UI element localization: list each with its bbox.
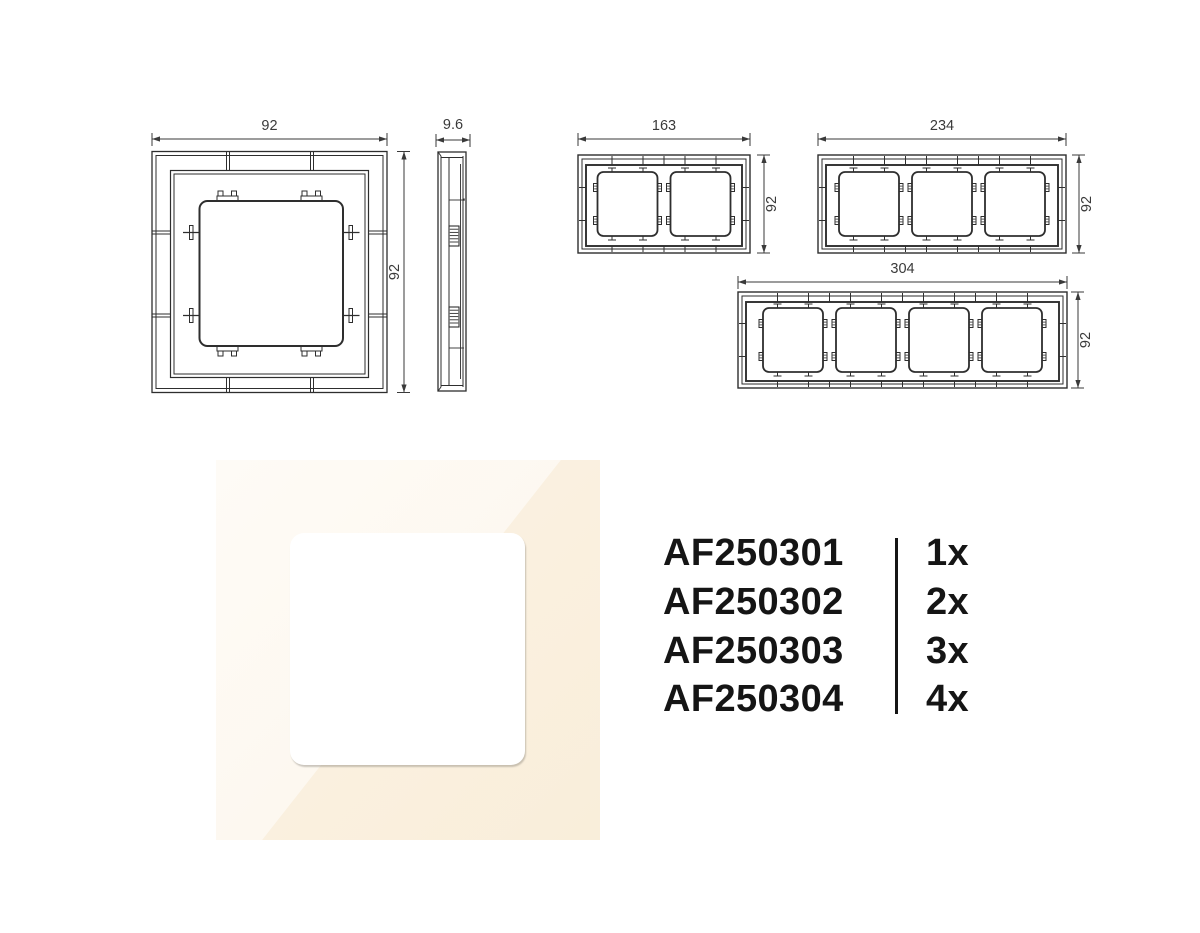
part-row: AF2503022x bbox=[663, 578, 993, 627]
product-datasheet: 9292 9.6 16392 23492 30492 AF2503011xAF2… bbox=[0, 0, 1200, 933]
dimension-label: 92 bbox=[764, 196, 780, 212]
parts-divider-line bbox=[895, 538, 898, 714]
part-code: AF250301 bbox=[663, 534, 895, 572]
drawing-side-profile: 9.6 bbox=[415, 108, 495, 403]
dimension-label: 234 bbox=[930, 118, 954, 134]
dimension-label: 92 bbox=[1079, 196, 1095, 212]
drawing-2gang-front-view: 16392 bbox=[570, 112, 805, 264]
drawing-1gang-front-view: 9292 bbox=[138, 108, 428, 408]
product-photo-frame bbox=[216, 460, 600, 840]
part-quantity: 1x bbox=[926, 534, 969, 572]
dimension-label: 163 bbox=[652, 118, 676, 134]
part-code: AF250302 bbox=[663, 583, 895, 621]
part-row: AF2503044x bbox=[663, 675, 993, 724]
drawing-3gang-front-view: 23492 bbox=[808, 112, 1108, 264]
part-row: AF2503011x bbox=[663, 529, 993, 578]
part-quantity: 4x bbox=[926, 680, 969, 718]
dimension-label: 9.6 bbox=[443, 117, 463, 133]
part-code: AF250303 bbox=[663, 632, 895, 670]
parts-list: AF2503011xAF2503022xAF2503033xAF2503044x bbox=[663, 529, 993, 724]
dimension-label: 92 bbox=[1078, 332, 1094, 348]
dimension-label: 304 bbox=[890, 261, 914, 277]
dimension-label: 92 bbox=[387, 264, 403, 280]
part-quantity: 2x bbox=[926, 583, 969, 621]
part-quantity: 3x bbox=[926, 632, 969, 670]
dimension-label: 92 bbox=[261, 118, 277, 134]
drawing-4gang-front-view: 30492 bbox=[728, 258, 1108, 400]
part-row: AF2503033x bbox=[663, 626, 993, 675]
part-code: AF250304 bbox=[663, 680, 895, 718]
photo-window-cutout bbox=[290, 533, 525, 765]
